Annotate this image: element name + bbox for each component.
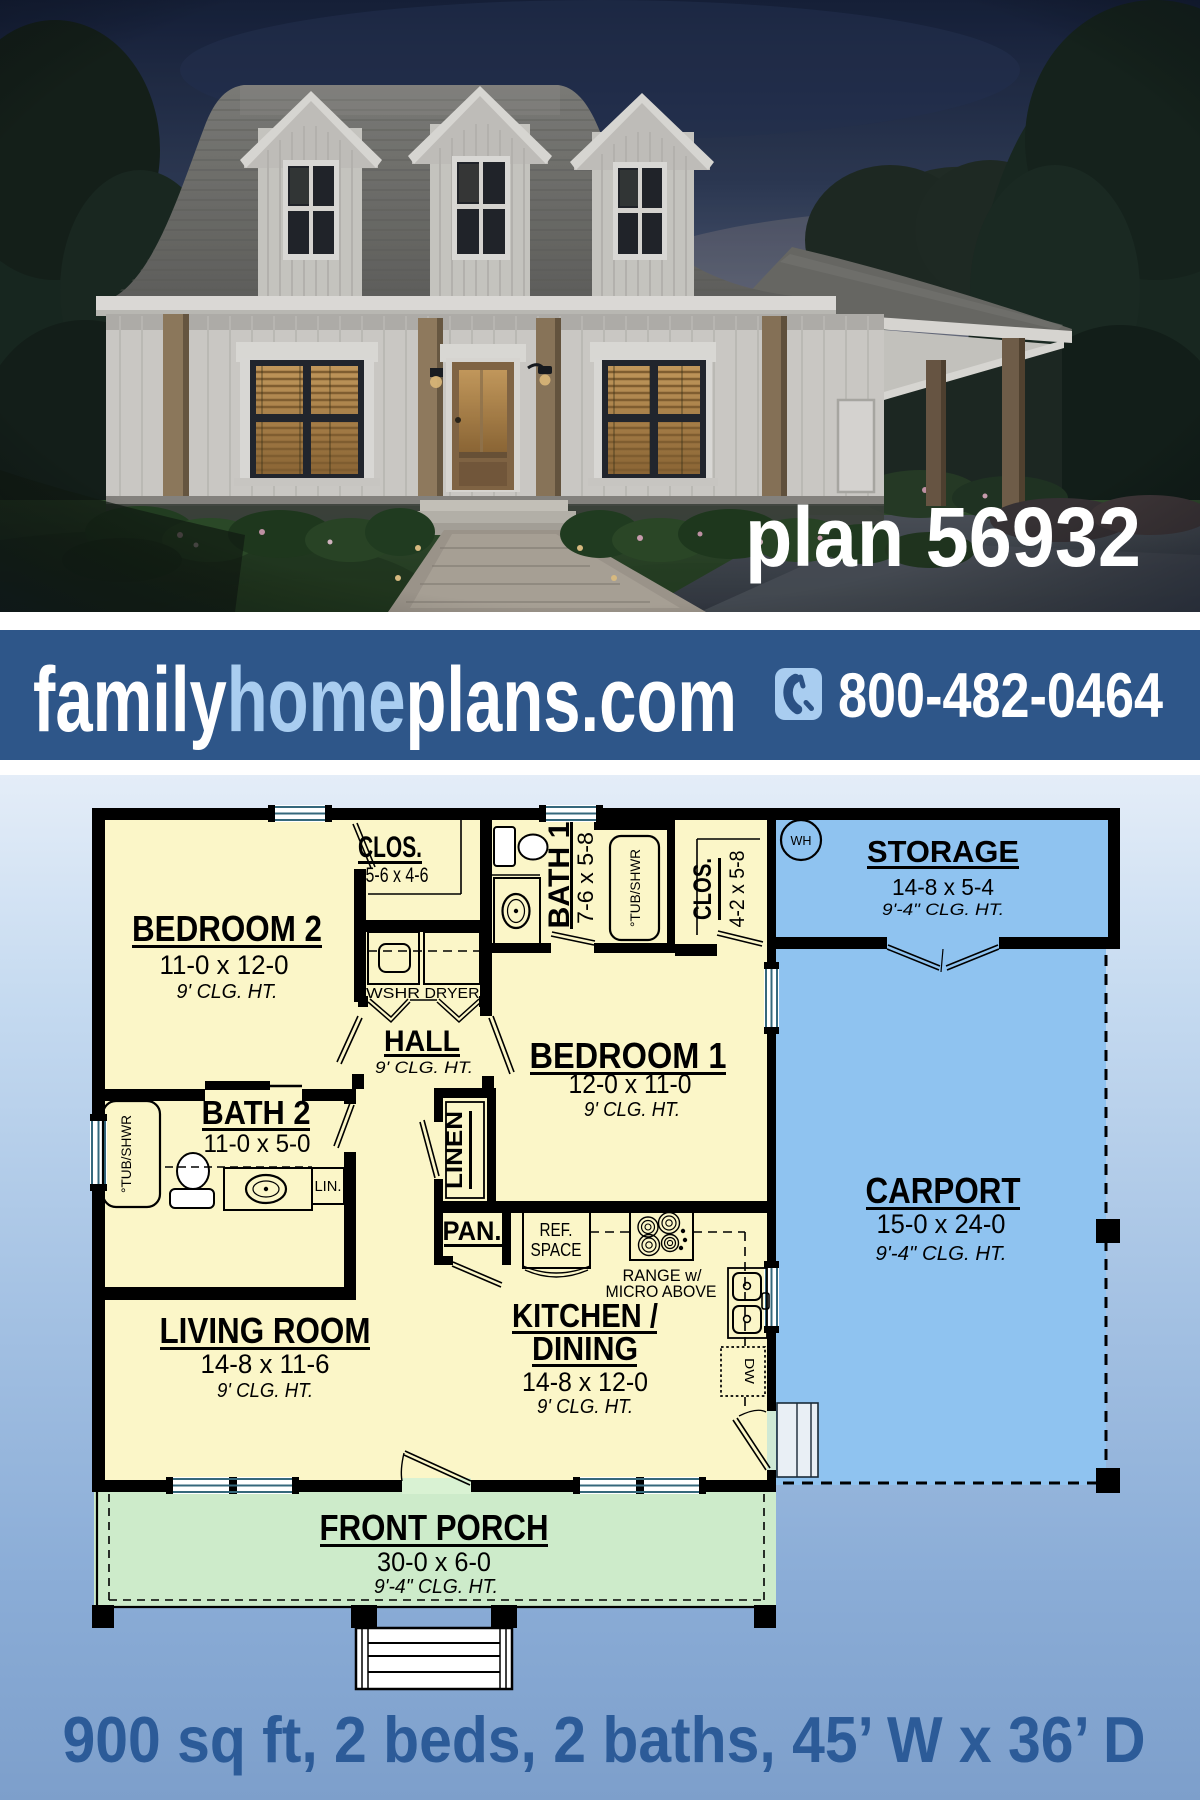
svg-text:CLOS.: CLOS. — [358, 831, 422, 864]
svg-text:SPACE: SPACE — [531, 1240, 582, 1260]
svg-text:900 sq ft, 2 beds, 2 baths, 45: 900 sq ft, 2 beds, 2 baths, 45’ W x 36’ … — [63, 1703, 1146, 1776]
svg-text:REF.: REF. — [540, 1220, 573, 1240]
svg-text:CARPORT: CARPORT — [866, 1170, 1021, 1211]
svg-text:5-6 x 4-6: 5-6 x 4-6 — [366, 864, 429, 887]
svg-text:°TUB/SHWR: °TUB/SHWR — [628, 849, 643, 927]
svg-text:CLOS.: CLOS. — [689, 858, 717, 920]
svg-text:KITCHEN /: KITCHEN / — [512, 1297, 658, 1334]
svg-text:DINING: DINING — [532, 1330, 638, 1367]
svg-text:LIN.: LIN. — [315, 1179, 342, 1195]
svg-text:11-0 x 5-0: 11-0 x 5-0 — [204, 1130, 311, 1158]
svg-text:STORAGE: STORAGE — [867, 834, 1019, 869]
svg-text:9' CLG. HT.: 9' CLG. HT. — [217, 1380, 313, 1402]
svg-text:11-0 x 12-0: 11-0 x 12-0 — [160, 950, 289, 980]
svg-text:BATH 2: BATH 2 — [202, 1094, 311, 1131]
svg-text:9' CLG. HT.: 9' CLG. HT. — [177, 981, 278, 1003]
svg-text:800-482-0464: 800-482-0464 — [838, 661, 1163, 731]
svg-text:14-8 x 11-6: 14-8 x 11-6 — [201, 1349, 330, 1379]
svg-text:WSHR: WSHR — [366, 985, 420, 1002]
svg-text:HALL: HALL — [384, 1025, 460, 1058]
svg-text:WH: WH — [791, 834, 812, 848]
svg-text:14-8 x 12-0: 14-8 x 12-0 — [522, 1367, 648, 1397]
svg-text:DW: DW — [742, 1358, 757, 1385]
svg-text:7-6 x 5-8: 7-6 x 5-8 — [573, 832, 598, 924]
svg-text:PAN.: PAN. — [443, 1216, 502, 1246]
svg-text:°TUB/SHWR: °TUB/SHWR — [119, 1115, 134, 1193]
svg-text:plan 56932: plan 56932 — [745, 490, 1141, 584]
svg-text:9'-4" CLG. HT.: 9'-4" CLG. HT. — [882, 900, 1004, 919]
svg-text:15-0 x 24-0: 15-0 x 24-0 — [877, 1209, 1006, 1239]
svg-text:9'-4" CLG. HT.: 9'-4" CLG. HT. — [374, 1576, 498, 1598]
svg-text:4-2 x 5-8: 4-2 x 5-8 — [726, 851, 749, 928]
svg-text:9' CLG. HT.: 9' CLG. HT. — [375, 1058, 473, 1077]
svg-text:BEDROOM 2: BEDROOM 2 — [132, 908, 322, 949]
svg-text:14-8 x 5-4: 14-8 x 5-4 — [892, 874, 994, 900]
svg-text:9' CLG. HT.: 9' CLG. HT. — [584, 1099, 680, 1121]
svg-text:LIVING ROOM: LIVING ROOM — [160, 1310, 371, 1351]
svg-text:FRONT PORCH: FRONT PORCH — [320, 1507, 549, 1548]
svg-text:familyhomeplans.com: familyhomeplans.com — [33, 649, 737, 751]
svg-text:30-0 x 6-0: 30-0 x 6-0 — [377, 1547, 491, 1577]
svg-text:LINEN: LINEN — [442, 1111, 467, 1189]
svg-text:9' CLG. HT.: 9' CLG. HT. — [537, 1396, 633, 1418]
svg-text:12-0 x 11-0: 12-0 x 11-0 — [569, 1069, 692, 1099]
svg-text:9'-4" CLG. HT.: 9'-4" CLG. HT. — [876, 1243, 1007, 1265]
svg-text:DRYER: DRYER — [425, 985, 480, 1002]
